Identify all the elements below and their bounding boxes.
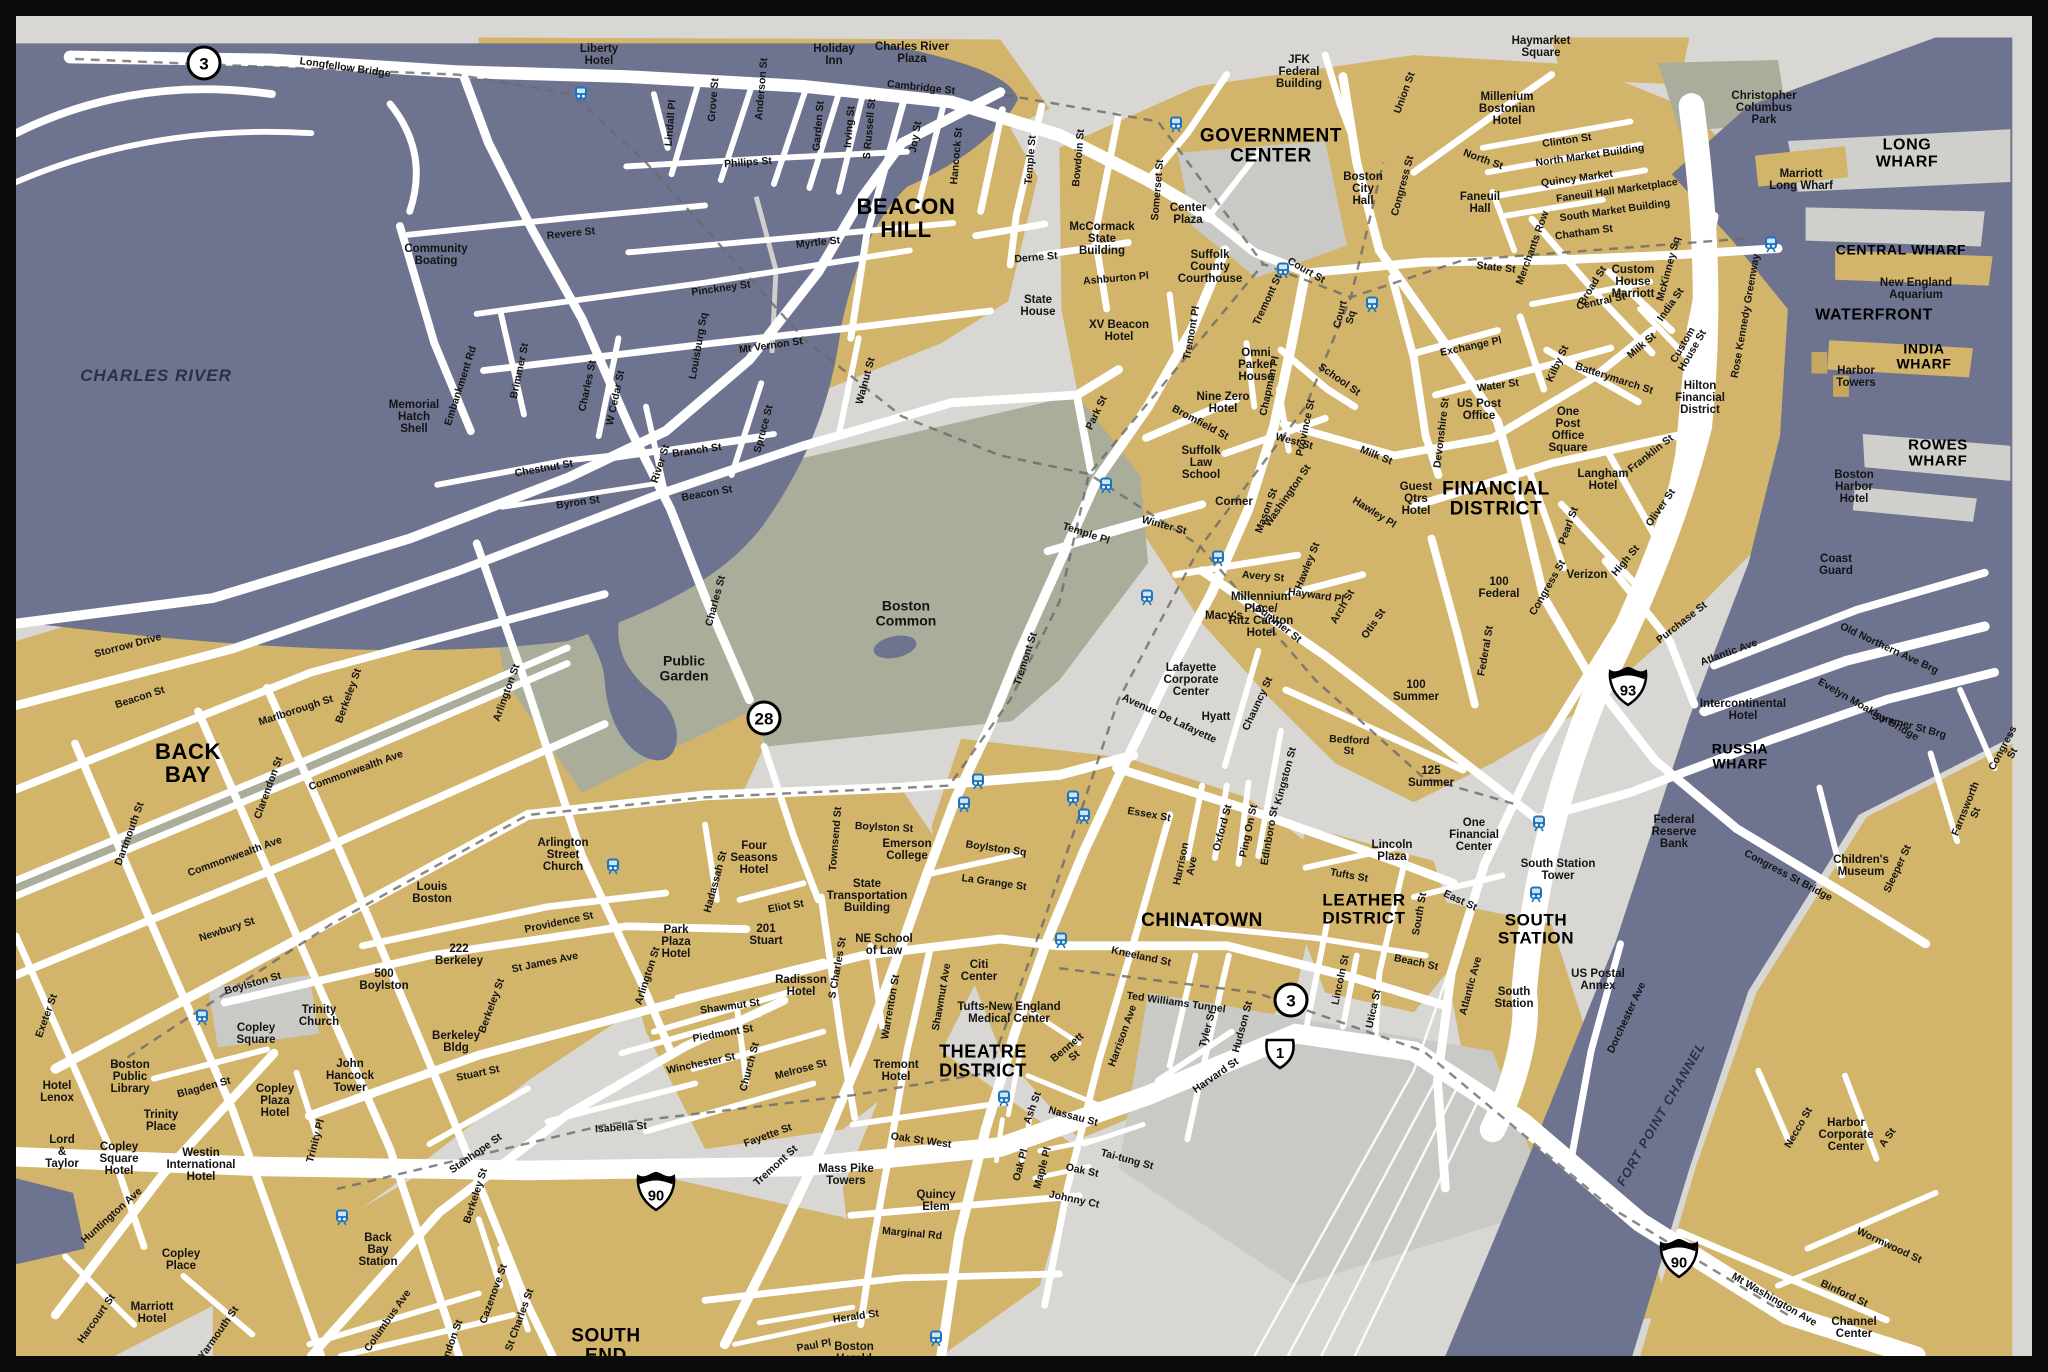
street-beacon-st: Beacon St — [114, 685, 166, 711]
street-warrenton-st: Warrenton St — [880, 974, 902, 1040]
street-lindall-pl: Lindall Pl — [664, 99, 679, 146]
street-shawmut-st: Shawmut St — [699, 997, 760, 1016]
landmark-public-garden: Public Garden — [659, 653, 708, 682]
landmark-boston-harbor-hotel: Boston Harbor Hotel — [1834, 470, 1874, 506]
street-grove-st: Grove St — [707, 78, 722, 123]
landmark-us-postal-annex: US Postal Annex — [1571, 969, 1625, 993]
street-garden-st: Garden St — [811, 101, 826, 152]
street-merchants-row: Merchants Row — [1515, 210, 1552, 287]
street-india-st: India St — [1656, 286, 1687, 323]
street-berkeley-st: Berkeley St — [477, 977, 507, 1034]
street-shawmut-ave: Shawmut Ave — [931, 963, 954, 1032]
street-church-st: Church St — [738, 1041, 762, 1092]
street-joy-st: Joy St — [908, 121, 924, 154]
street-oak-st: Oak St — [1065, 1162, 1100, 1180]
street-central-st: Central St — [1576, 292, 1627, 313]
street-lawrence-st: Lawrence St — [413, 1364, 476, 1372]
landmark-one-financial-center: One Financial Center — [1449, 818, 1499, 854]
street-exchange-pl: Exchange Pl — [1439, 335, 1502, 359]
street-oak-st-west: Oak St West — [890, 1131, 952, 1150]
transit-station-icon — [1066, 790, 1081, 807]
street-exeter-st: Exeter St — [34, 993, 60, 1040]
landmark-haymarket-square: Haymarket Square — [1512, 36, 1571, 60]
svg-text:90: 90 — [1671, 1255, 1687, 1271]
landmark-us-post-office: US Post Office — [1457, 399, 1501, 423]
street-tyler-st: Tyler St — [1198, 1009, 1218, 1048]
transit-station-icon — [929, 1330, 944, 1347]
landmark-quincy-elem: Quincy Elem — [917, 1190, 956, 1214]
street-wormwood-st: Wormwood St — [1855, 1226, 1923, 1266]
landmark-citi-center: Citi Center — [961, 960, 997, 984]
street-avery-st: Avery St — [1241, 570, 1284, 585]
route-shield-28: 28 — [744, 698, 788, 740]
landmark-center-plaza: Center Plaza — [1170, 203, 1206, 227]
street-temple-pl: Temple Pl — [1061, 521, 1111, 546]
street-east-st: East St — [1442, 889, 1479, 914]
landmark-millennium-place-ritz-carlton-hotel: Millennium Place/ Ritz Carlton Hotel — [1229, 592, 1294, 640]
street-summer-st-brg: Summer St Brg — [1871, 711, 1948, 741]
street-clarendon-st: Clarendon St — [433, 1318, 466, 1372]
street-congress-st: Congress St — [1987, 724, 2029, 777]
street-st-james-ave: St James Ave — [511, 951, 579, 976]
street-johnny-ct: Johnny Ct — [1048, 1189, 1100, 1210]
street-dorchester-ave: Dorchester Ave — [1606, 981, 1648, 1055]
landmark-faneuil-hall: Faneuil Hall — [1460, 192, 1500, 216]
street-farnsworth-st: Farnsworth St — [1949, 779, 1992, 844]
street-oxford-st: Oxford St — [1212, 803, 1235, 852]
street-newbury-st: Newbury St — [198, 916, 256, 944]
transit-station-icon — [1211, 550, 1226, 567]
street-union-st: Union St — [1392, 71, 1417, 115]
landmark-federal-reserve-bank: Federal Reserve Bank — [1652, 815, 1697, 851]
route-shield-i90: 90 — [1657, 1237, 1701, 1279]
street-tremont-st: Tremont St — [752, 1144, 800, 1189]
street-charles-st: Charles St — [704, 575, 728, 628]
landmark-201-stuart: 201 Stuart — [749, 924, 782, 948]
street-hudson-st: Hudson St — [1231, 1000, 1255, 1054]
landmark-four-seasons-hotel: Four Seasons Hotel — [730, 841, 777, 877]
street-temple-st: Temple St — [1023, 135, 1038, 185]
street-west-st: West St — [1274, 432, 1314, 452]
street-congress-st-bridge: Congress St Bridge — [1742, 848, 1834, 904]
street-lincoln-st: Lincoln St — [1330, 954, 1351, 1006]
street-harcourt-st: Harcourt St — [76, 1292, 118, 1345]
landmark-custom-house-marriott: Custom House Marriott — [1612, 265, 1655, 301]
landmark-boston-common: Boston Common — [876, 598, 937, 627]
transit-station-icon — [1077, 808, 1092, 825]
street-purchase-st: Purchase St — [1655, 600, 1710, 646]
street-tai-tung-st: Tai-tung St — [1099, 1148, 1154, 1173]
landmark-macy-s: Macy's — [1205, 611, 1243, 623]
street-somerset-st: Somerset St — [1150, 159, 1166, 221]
street-fayette-st: Fayette St — [743, 1122, 794, 1149]
street-hancock-st: Hancock St — [949, 127, 965, 185]
street-chestnut-st: Chestnut St — [514, 459, 574, 480]
district-long-wharf: LONG WHARF — [1876, 137, 1939, 170]
street-tufts-st: Tufts St — [1329, 867, 1369, 884]
landmark-125-summer: 125 Summer — [1408, 766, 1454, 790]
landmark-south-station: South Station — [1495, 987, 1534, 1011]
landmark-copley-square: Copley Square — [237, 1023, 276, 1047]
landmark-suffolk-law-school: Suffolk Law School — [1182, 446, 1221, 482]
street-philips-st: Philips St — [724, 156, 772, 170]
route-shield-i93: 93 — [1606, 665, 1650, 707]
street-summer-st: Summer St — [1253, 603, 1303, 646]
street-beacon-st: Beacon St — [681, 484, 733, 504]
landmark-trinity-church: Trinity Church — [299, 1005, 339, 1029]
landmark-jfk-federal-building: JFK Federal Building — [1276, 55, 1322, 91]
street-marlborough-st: Marlborough St — [257, 694, 334, 728]
street-a-st: A St — [1878, 1126, 1899, 1149]
district-theatre-district: THEATRE DISTRICT — [939, 1042, 1027, 1079]
street-boylston-st: Boylston St — [223, 971, 282, 998]
street-winchester-st: Winchester St — [666, 1051, 737, 1076]
street-essex-st: Essex St — [1126, 806, 1171, 824]
transit-station-icon — [574, 86, 589, 103]
district-beacon-hill: BEACON HILL — [857, 196, 956, 242]
route-shield-3: 3 — [184, 43, 228, 85]
street-north-st: North St — [1462, 148, 1505, 172]
transit-station-icon — [1276, 262, 1291, 279]
landmark-christopher-columbus-park: Christopher Columbus Park — [1731, 91, 1796, 127]
landmark-verizon: Verizon — [1567, 570, 1608, 582]
landmark-nine-zero-hotel: Nine Zero Hotel — [1196, 392, 1249, 416]
street-bowdoin-st: Bowdoin St — [1071, 129, 1087, 187]
landmark-boston-public-library: Boston Public Library — [110, 1060, 150, 1096]
district-russia-wharf: RUSSIA WHARF — [1712, 741, 1769, 770]
street-devonshire-st: Devonshire St — [1432, 397, 1451, 468]
landmark-millenium-bostonian-hotel: Millenium Bostonian Hotel — [1479, 92, 1535, 128]
street-ash-st: Ash St — [1022, 1091, 1044, 1126]
landmark-radisson-hotel: Radisson Hotel — [775, 975, 827, 999]
street-branch-st: Branch St — [672, 442, 723, 460]
svg-text:93: 93 — [1620, 683, 1636, 699]
street-la-grange-st: La Grange St — [961, 873, 1027, 893]
street-myrtle-st: Myrtle St — [795, 235, 840, 250]
boston-street-map[interactable]: BEACON HILLGOVERNMENT CENTERBACK BAYFINA… — [0, 0, 2048, 1372]
landmark-xv-beacon-hotel: XV Beacon Hotel — [1089, 320, 1149, 344]
street-boylston-sq: Boylston Sq — [965, 839, 1027, 858]
landmark-trinity-place: Trinity Place — [144, 1110, 179, 1134]
landmark-community-boating: Community Boating — [404, 244, 467, 268]
transit-station-icon — [971, 773, 986, 790]
street-berkeley-st: Berkeley St — [462, 1167, 490, 1225]
transit-station-icon — [195, 1009, 210, 1026]
street-harvard-st: Harvard St — [1191, 1056, 1241, 1095]
street-derne-st: Derne St — [1014, 251, 1058, 266]
district-waterfront: WATERFRONT — [1815, 308, 1933, 325]
street-tremont-st: Tremont St — [1251, 273, 1284, 327]
svg-text:1: 1 — [1276, 1045, 1284, 1062]
street-beach-st: Beach St — [1393, 953, 1439, 973]
landmark-222-berkeley: 222 Berkeley — [435, 944, 483, 968]
street-park-st: Park St — [1084, 394, 1109, 431]
landmark-omni-parker-house: Omni Parker House — [1238, 348, 1274, 384]
street-clarendon-st: Clarendon St — [253, 755, 286, 820]
street-atlantic-ave: Atlantic Ave — [1699, 638, 1759, 669]
landmark-mccormack-state-building: McCormack State Building — [1069, 222, 1134, 258]
svg-text:28: 28 — [755, 710, 774, 729]
street-blagden-st: Blagden St — [176, 1076, 232, 1101]
street-rose-kennedy-greenway: Rose Kennedy Greenway — [1730, 253, 1763, 379]
district-south-end: SOUTH END — [571, 1326, 641, 1366]
street-kilby-st: Kilby St — [1545, 344, 1571, 384]
street-edinboro-st: Edinboro St — [1259, 806, 1280, 866]
landmark-hilton-financial-district: Hilton Financial District — [1675, 381, 1725, 417]
street-hayward-pl: Hayward Pl — [1287, 587, 1345, 606]
street-s-charles-st: S Charles St — [827, 937, 848, 1000]
street-washington-st: Washington St — [1263, 463, 1314, 529]
street-water-st: Water St — [1476, 378, 1519, 395]
street-batterymarch-st: Batterymarch St — [1574, 361, 1655, 396]
district-chinatown: CHINATOWN — [1141, 911, 1263, 931]
landmark-south-station-tower: South Station Tower — [1521, 859, 1596, 883]
street-mt-washington-ave: Mt Washington Ave — [1730, 1271, 1819, 1329]
street-chandler-st: Chandler St — [356, 1357, 416, 1372]
street-spruce-st: Spruce St — [752, 404, 775, 454]
street-clinton-st: Clinton St — [1542, 132, 1593, 150]
transit-station-icon — [1140, 589, 1155, 606]
street-state-st: State St — [1476, 261, 1516, 276]
transit-station-icon — [1529, 886, 1544, 903]
street-tremont-st: Tremont St — [1012, 631, 1039, 687]
street-townsend-st: Townsend St — [828, 806, 844, 871]
street-kingston-st: Kingston St — [1273, 746, 1299, 806]
street-bennett-st: Bennett St — [1049, 1031, 1093, 1073]
street-faneuil-hall-marketplace: Faneuil Hall Marketplace — [1556, 177, 1679, 205]
landmark-holiday-inn: Holiday Inn — [813, 44, 855, 68]
landmark-charles-river-plaza: Charles River Plaza — [875, 42, 949, 66]
landmark-lafayette-corporate-center: Lafayette Corporate Center — [1164, 663, 1219, 699]
landmark-intercontinental-hotel: Intercontinental Hotel — [1700, 699, 1786, 723]
transit-station-icon — [957, 796, 972, 813]
district-government-center: GOVERNMENT CENTER — [1200, 126, 1342, 166]
district-india-wharf: INDIA WHARF — [1896, 341, 1951, 370]
street-river-st: River St — [650, 443, 673, 484]
street-ping-on-st: Ping On St — [1238, 804, 1260, 859]
street-eliot-st: Eliot St — [767, 898, 805, 915]
street-longfellow-bridge: Longfellow Bridge — [299, 56, 391, 80]
street-chapman-pl: Chapman Pl — [1258, 355, 1281, 417]
landmark-memorial-hatch-shell: Memorial Hatch Shell — [389, 400, 440, 436]
water-lbl-fort-point-channel: FORT POINT CHANNEL — [1614, 1040, 1708, 1188]
street-evelyn-moakley-bridge: Evelyn Moakley Bridge — [1816, 677, 1921, 744]
street-s-russell-st: S Russell St — [862, 98, 878, 159]
street-marginal-rd: Marginal Rd — [882, 1226, 943, 1242]
landmark-channel-center: Channel Center — [1831, 1317, 1876, 1341]
street-brimmer-st: Brimmer St — [509, 342, 531, 400]
street-stuart-st: Stuart St — [455, 1064, 500, 1084]
street-south-market-building: South Market Building — [1559, 198, 1671, 224]
street-nassau-st: Nassau St — [1047, 1105, 1099, 1129]
street-necco-st: Necco St — [1783, 1106, 1815, 1150]
street-sleeper-st: Sleeper St — [1882, 843, 1914, 894]
street-north-market-building: North Market Building — [1535, 143, 1645, 169]
landmark-suffolk-county-courthouse: Suffolk County Courthouse — [1178, 250, 1243, 286]
landmark-harbor-towers: Harbor Towers — [1836, 366, 1875, 390]
route-shield-3: 3 — [1271, 980, 1315, 1022]
street-irving-st: Irving St — [843, 106, 858, 149]
street-st-charles-st: St Charles St — [504, 1287, 537, 1352]
street-court-sq: Court Sq — [1332, 300, 1360, 333]
street-providence-st: Providence St — [524, 910, 595, 935]
landmark-liberty-hotel: Liberty Hotel — [580, 44, 618, 68]
street-embankment-rd: Embankment Rd — [443, 345, 479, 427]
landmark-john-hancock-tower: John Hancock Tower — [326, 1059, 374, 1095]
landmark-state-house: State House — [1020, 295, 1055, 319]
street-charles-st: Charles St — [577, 359, 598, 412]
street-quincy-market: Quincy Market — [1540, 169, 1613, 190]
district-south-station: SOUTH STATION — [1498, 911, 1574, 946]
transit-station-icon — [997, 1090, 1012, 1107]
district-rowes-wharf: ROWES WHARF — [1908, 437, 1968, 468]
street-harrison-ave: Harrison Ave — [1107, 1004, 1139, 1068]
street-south-st: South St — [1411, 892, 1429, 936]
landmark-boston-herald: Boston Herald — [834, 1342, 874, 1366]
district-financial-district: FINANCIAL DISTRICT — [1442, 479, 1550, 519]
landmark-back-bay-station: Back Bay Station — [359, 1233, 398, 1269]
street-tremont-pl: Tremont Pl — [1182, 305, 1202, 360]
street-congress-st: Congress St — [1528, 558, 1568, 617]
street-columbus-ave: Columbus Ave — [363, 1288, 414, 1354]
street-commonwealth-ave: Commonwealth Ave — [186, 835, 283, 879]
street-paul-pl: Paul Pl — [796, 1338, 832, 1355]
landmark-arlington-street-church: Arlington Street Church — [537, 838, 588, 874]
landmark-coast-guard: Coast Guard — [1819, 554, 1853, 578]
street-yarmouth-st: Yarmouth St — [197, 1305, 241, 1362]
street-hadassah-st: Hadassah St — [703, 850, 730, 914]
landmark-ne-school-of-law: NE School of Law — [855, 934, 913, 958]
route-shield-i90: 90 — [634, 1170, 678, 1212]
landmark-boston-city-hall: Boston City Hall — [1343, 172, 1383, 208]
landmark-tremont-hotel: Tremont Hotel — [873, 1060, 918, 1084]
street-atlantic-ave: Atlantic Ave — [1458, 956, 1484, 1017]
street-arlington-st: Arlington St — [492, 663, 523, 723]
landmark-copley-plaza-hotel: Copley Plaza Hotel — [256, 1084, 294, 1120]
street-herald-st: Herald St — [832, 1308, 879, 1325]
landmark-westin-international-hotel: Westin International Hotel — [166, 1148, 235, 1184]
street-pinckney-st: Pinckney St — [691, 279, 751, 298]
landmark-lincoln-plaza: Lincoln Plaza — [1372, 840, 1413, 864]
landmark-langham-hotel: Langham Hotel — [1577, 469, 1628, 493]
landmark-children-s-museum: Children's Museum — [1833, 855, 1889, 879]
street-hawley-st: Hawley St — [1294, 541, 1323, 591]
street-franklin-st: Franklin St — [1626, 433, 1675, 475]
landmark-guest-qtrs-hotel: Guest Qtrs Hotel — [1400, 482, 1433, 518]
landmark-lord-taylor: Lord & Taylor — [45, 1135, 79, 1171]
street-berkeley-st: Berkeley St — [334, 667, 364, 724]
street-otis-st: Otis St — [1360, 607, 1388, 641]
street-chauncy-st: Chauncy St — [1241, 676, 1275, 733]
landmark-one-post-office-square: One Post Office Square — [1549, 407, 1588, 455]
street-milk-st: Milk St — [1358, 445, 1393, 468]
street-piedmont-st: Piedmont St — [692, 1023, 754, 1044]
svg-text:90: 90 — [648, 1188, 664, 1204]
landmark-berkeley-bldg: Berkeley Bldg — [432, 1031, 480, 1055]
street-winter-st: Winter St — [1140, 515, 1187, 537]
landmark-hyatt: Hyatt — [1202, 712, 1231, 724]
landmark-louis-boston: Louis Boston — [412, 882, 452, 906]
street-revere-st: Revere St — [546, 226, 595, 242]
street-huntington-ave: Huntington Ave — [80, 1186, 145, 1246]
street-millicent-way: Millicent Way — [783, 1354, 850, 1372]
landmark-state-transportation-building: State Transportation Building — [827, 879, 908, 915]
landmark-tufts-new-england-medical-center: Tufts-New England Medical Center — [957, 1002, 1060, 1026]
label-layer: BEACON HILLGOVERNMENT CENTERBACK BAYFINA… — [16, 16, 2032, 1356]
street-utica-st: Utica St — [1365, 989, 1384, 1030]
street-dartmouth-st: Dartmouth St — [114, 801, 147, 867]
street-hawley-pl: Hawley Pl — [1350, 495, 1397, 530]
street-province-st: Province St — [1295, 399, 1318, 458]
street-trinity-pl: Trinity Pl — [305, 1118, 327, 1164]
street-arch-st: Arch St — [1329, 588, 1357, 626]
district-back-bay: BACK BAY — [155, 741, 221, 787]
transit-station-icon — [1532, 815, 1547, 832]
transit-station-icon — [335, 1209, 350, 1226]
district-leather-district: LEATHER DISTRICT — [1322, 891, 1405, 926]
street-oliver-st: Oliver St — [1644, 487, 1678, 529]
landmark-hotel-lenox: Hotel Lenox — [40, 1081, 74, 1105]
landmark-500-boylston: 500 Boylston — [359, 969, 408, 993]
landmark-copley-place: Copley Place — [162, 1249, 200, 1273]
street-harrison-ave: Harrison Ave — [1172, 842, 1202, 889]
street-mckinney-sq: McKinney Sq — [1655, 236, 1683, 303]
transit-station-icon — [1365, 296, 1380, 313]
transit-station-icon — [1054, 932, 1069, 949]
landmark-marriott-hotel: Marriott Hotel — [131, 1302, 174, 1326]
landmark-emerson-college: Emerson College — [882, 839, 931, 863]
street-ted-williams-tunnel: Ted Williams Tunnel — [1126, 991, 1226, 1016]
street-oak-pl: Oak Pl — [1012, 1148, 1031, 1182]
street-walnut-st: Walnut St — [855, 356, 878, 405]
svg-text:3: 3 — [199, 55, 208, 74]
landmark-mass-pike-towers: Mass Pike Towers — [818, 1164, 874, 1188]
landmark-park-plaza-hotel: Park Plaza Hotel — [661, 925, 690, 961]
street-bedford-st: Bedford St — [1328, 734, 1369, 758]
route-shield-us1: 1 — [1260, 1033, 1304, 1075]
transit-station-icon — [1099, 477, 1114, 494]
street-anderson-st: Anderson St — [754, 57, 770, 120]
street-commonwealth-ave: Commonwealth Ave — [307, 749, 404, 793]
district-central-wharf: CENTRAL WHARF — [1836, 243, 1966, 258]
landmark-copley-square-hotel: Copley Square Hotel — [100, 1142, 139, 1178]
svg-text:3: 3 — [1286, 992, 1295, 1011]
street-milk-st: Milk St — [1626, 331, 1659, 361]
street-court-st: Court St — [1285, 256, 1326, 286]
street-ashburton-pl: Ashburton Pl — [1083, 271, 1150, 288]
street-broad-st: Broad St — [1577, 265, 1609, 308]
landmark-100-summer: 100 Summer — [1393, 680, 1439, 704]
transit-station-icon — [1169, 116, 1184, 133]
street-arlington-st: Arlington St — [634, 946, 663, 1007]
street-congress-st: Congress St — [1390, 155, 1417, 218]
street-old-northern-ave-brg: Old Northern Ave Brg — [1838, 621, 1940, 676]
landmark-corner: Corner — [1215, 497, 1253, 509]
street-high-st: High St — [1610, 543, 1642, 578]
street-kneeland-st: Kneeland St — [1110, 945, 1172, 968]
street-byron-st: Byron St — [556, 495, 601, 512]
street-melrose-st: Melrose St — [774, 1058, 828, 1082]
landmark-new-england-aquarium: New England Aquarium — [1880, 278, 1952, 302]
landmark-harbor-corporate-center: Harbor Corporate Center — [1819, 1118, 1874, 1154]
street-chatham-st: Chatham St — [1554, 224, 1613, 243]
street-boylston-st: Boylston St — [855, 821, 914, 835]
street-federal-st: Federal St — [1476, 625, 1496, 677]
street-louisburg-sq: Louisburg Sq — [688, 312, 710, 381]
street-maple-pl: Maple Pl — [1032, 1146, 1054, 1190]
street-custom-house-st: Custom House St — [1667, 323, 1709, 373]
street-isabella-st: Isabella St — [595, 1121, 648, 1136]
